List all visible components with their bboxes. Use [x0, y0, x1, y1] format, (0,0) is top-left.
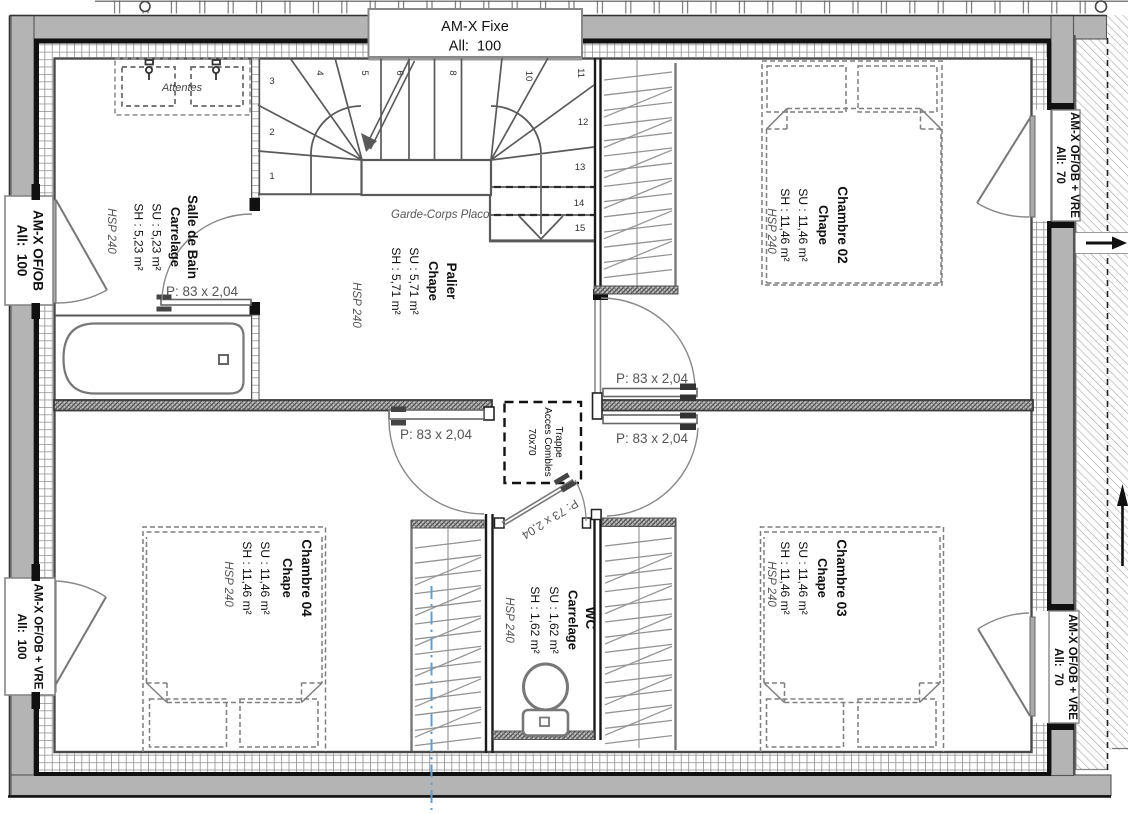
svg-text:SU : 5,71 m²: SU : 5,71 m²: [407, 247, 421, 314]
svg-text:Chape: Chape: [280, 558, 295, 598]
svg-text:AM-X Fixe: AM-X Fixe: [441, 19, 509, 35]
svg-text:14: 14: [574, 198, 585, 209]
svg-text:8: 8: [447, 70, 458, 75]
svg-text:AM-X OF/OB + VRE: AM-X OF/OB + VRE: [32, 584, 44, 690]
svg-text:Chape: Chape: [426, 261, 441, 301]
svg-text:AM-X OF/OB + VRE: AM-X OF/OB + VRE: [1068, 112, 1080, 218]
svg-text:Chambre 04: Chambre 04: [299, 539, 314, 617]
svg-text:P: 83 x 2,04: P: 83 x 2,04: [400, 427, 473, 442]
svg-text:Chambre 03: Chambre 03: [834, 539, 849, 617]
svg-text:Garde-Corps Placo: Garde-Corps Placo: [391, 209, 490, 221]
svg-text:10: 10: [523, 71, 534, 82]
svg-text:HSP 240: HSP 240: [350, 282, 362, 328]
svg-text:SH : 5,23 m²: SH : 5,23 m²: [132, 203, 146, 270]
svg-text:P: 83 x 2,04: P: 83 x 2,04: [166, 284, 239, 299]
svg-text:Salle de Bain: Salle de Bain: [185, 195, 200, 279]
svg-text:SU : 11,46 m²: SU : 11,46 m²: [796, 188, 810, 261]
svg-text:HSP 240: HSP 240: [765, 561, 777, 607]
svg-text:All: 100: All: 100: [15, 225, 30, 277]
svg-text:P: 83 x 2,04: P: 83 x 2,04: [616, 371, 689, 386]
svg-text:Attentes: Attentes: [161, 82, 203, 94]
svg-text:3: 3: [269, 76, 274, 87]
svg-text:SH : 11,46 m²: SH : 11,46 m²: [778, 541, 792, 614]
svg-text:SU : 1,62 m²: SU : 1,62 m²: [547, 586, 561, 653]
svg-text:Chambre 02: Chambre 02: [835, 186, 850, 263]
svg-text:4: 4: [314, 70, 325, 75]
svg-text:HSP 240: HSP 240: [222, 561, 234, 607]
svg-text:1: 1: [269, 171, 274, 182]
svg-text:WC: WC: [583, 607, 598, 630]
svg-text:SH : 11,46 m²: SH : 11,46 m²: [240, 541, 254, 614]
svg-text:13: 13: [575, 162, 586, 173]
svg-text:All: 70: All: 70: [1052, 648, 1064, 686]
svg-text:SU : 11,46 m²: SU : 11,46 m²: [258, 541, 272, 614]
svg-text:70x70: 70x70: [526, 428, 537, 456]
svg-text:All: 70: All: 70: [1054, 146, 1066, 184]
svg-text:2: 2: [269, 127, 274, 138]
svg-text:SU : 5,23 m²: SU : 5,23 m²: [150, 203, 164, 270]
svg-text:11: 11: [575, 68, 586, 78]
svg-text:All: 100: All: 100: [449, 39, 501, 55]
svg-text:SH : 5,71 m²: SH : 5,71 m²: [389, 247, 403, 314]
svg-text:SH : 1,62 m²: SH : 1,62 m²: [528, 586, 542, 653]
svg-text:All: 100: All: 100: [15, 613, 29, 659]
svg-text:Palier: Palier: [444, 263, 459, 301]
svg-text:6: 6: [394, 70, 405, 75]
svg-text:HSP 240: HSP 240: [105, 208, 117, 254]
svg-text:Trappe: Trappe: [553, 426, 564, 458]
svg-text:Carrelage: Carrelage: [168, 207, 183, 267]
svg-text:Carrelage: Carrelage: [566, 590, 581, 650]
svg-text:AM-X OF/OB: AM-X OF/OB: [31, 210, 46, 291]
svg-text:AM-X OF/OB + VRE: AM-X OF/OB + VRE: [1066, 614, 1078, 720]
svg-text:HSP 240: HSP 240: [765, 208, 777, 254]
svg-text:Chape: Chape: [815, 558, 830, 598]
svg-text:SH : 11,46 m²: SH : 11,46 m²: [778, 188, 792, 261]
svg-text:HSP 240: HSP 240: [503, 597, 515, 643]
svg-text:Acces Combles: Acces Combles: [542, 407, 553, 476]
svg-text:Chape: Chape: [816, 205, 831, 245]
svg-text:12: 12: [578, 117, 589, 128]
svg-text:P: 83 x 2,04: P: 83 x 2,04: [616, 431, 689, 446]
svg-text:15: 15: [575, 223, 586, 234]
svg-text:SU : 11,46 m²: SU : 11,46 m²: [796, 541, 810, 614]
svg-text:5: 5: [359, 70, 370, 75]
